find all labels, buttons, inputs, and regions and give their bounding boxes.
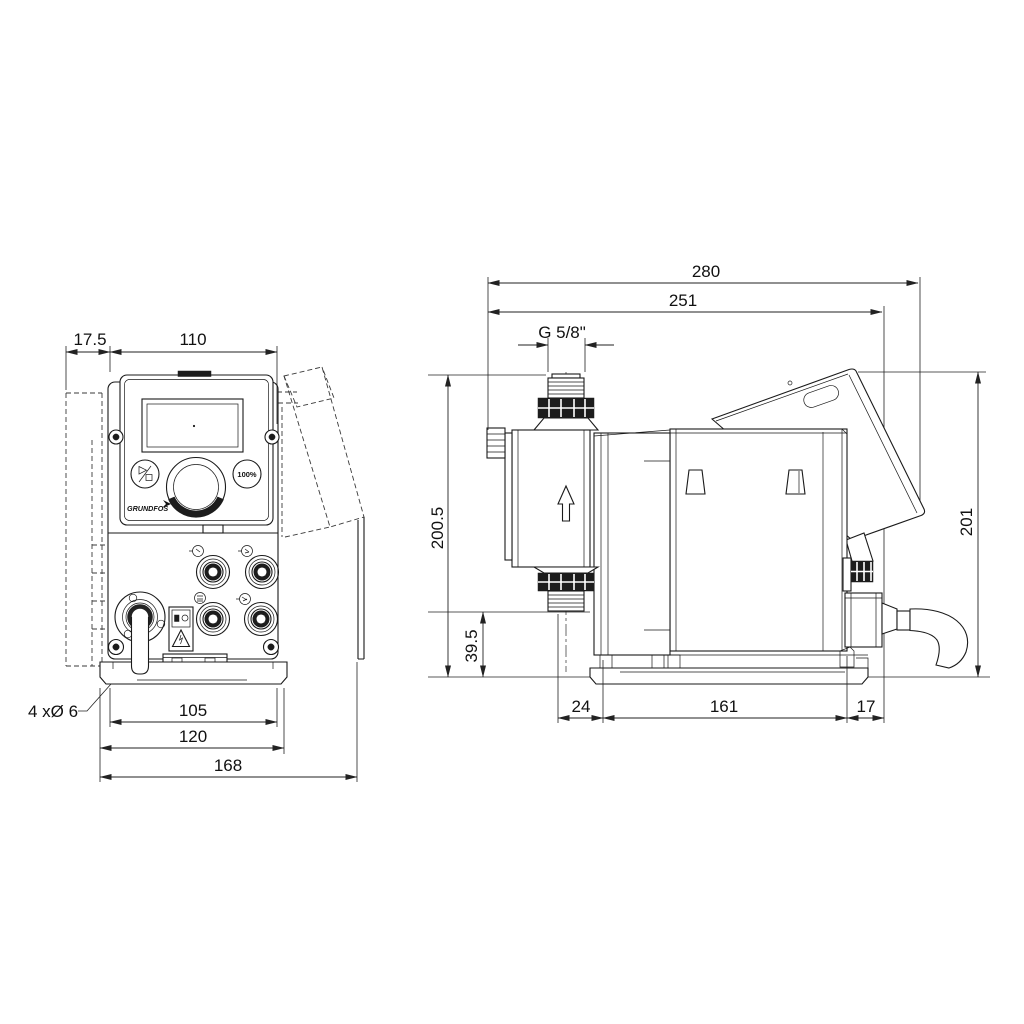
dim-base-rear-offset: 17 bbox=[847, 680, 884, 723]
stub-collar bbox=[843, 558, 851, 591]
svg-text:251: 251 bbox=[669, 291, 697, 310]
svg-text:280: 280 bbox=[692, 262, 720, 281]
dim-depth-to-cable-gland: 251 bbox=[488, 291, 882, 312]
dosing-head bbox=[487, 372, 598, 672]
start-stop-button[interactable] bbox=[131, 460, 159, 488]
gland-nozzle bbox=[897, 611, 910, 630]
dim-base-length: 161 bbox=[603, 656, 847, 723]
brand-name: GRUNDFOS bbox=[127, 504, 168, 513]
svg-text:24: 24 bbox=[572, 697, 591, 716]
svg-text:17.5: 17.5 bbox=[73, 330, 106, 349]
display-cursor-dot bbox=[193, 425, 195, 427]
dim-thread-size: G 5/8" bbox=[518, 323, 614, 372]
discharge-valve bbox=[534, 374, 598, 430]
cable-gland bbox=[845, 593, 882, 647]
front-view: 100% GRUNDFOS bbox=[28, 330, 364, 782]
adapter-section bbox=[594, 430, 670, 655]
suction-valve bbox=[534, 567, 598, 611]
svg-text:201: 201 bbox=[957, 508, 976, 536]
svg-text:105: 105 bbox=[179, 701, 207, 720]
drawing-canvas: 100% GRUNDFOS bbox=[0, 0, 1024, 1024]
deaeration-knob[interactable] bbox=[487, 428, 505, 458]
svg-text:39.5: 39.5 bbox=[462, 629, 481, 662]
corner-screw bbox=[109, 640, 124, 655]
click-wheel[interactable] bbox=[167, 458, 226, 517]
svg-text:200.5: 200.5 bbox=[428, 507, 447, 550]
wall-plate-phantom bbox=[66, 393, 108, 666]
drive-housing bbox=[670, 429, 847, 651]
warning-label bbox=[169, 607, 193, 651]
mounting-plate-front bbox=[100, 662, 287, 684]
rear-connections bbox=[843, 558, 968, 668]
svg-text:120: 120 bbox=[179, 727, 207, 746]
panel-top-tab bbox=[178, 371, 211, 377]
dim-hole-spacing: 105 bbox=[110, 688, 277, 727]
svg-text:G 5/8": G 5/8" bbox=[538, 323, 586, 342]
svg-text:4 xØ 6: 4 xØ 6 bbox=[28, 702, 78, 721]
power-cable bbox=[910, 609, 968, 668]
mounting-holes-callout: 4 xØ 6 bbox=[28, 684, 111, 721]
svg-text:110: 110 bbox=[179, 330, 206, 349]
corner-screw bbox=[264, 640, 279, 655]
control-panel: 100% GRUNDFOS bbox=[109, 371, 279, 525]
tilted-panel-phantom bbox=[277, 367, 364, 659]
mains-cable-front bbox=[132, 617, 149, 674]
hundred-percent-label: 100% bbox=[237, 470, 257, 479]
svg-text:168: 168 bbox=[214, 756, 242, 775]
svg-text:161: 161 bbox=[710, 697, 738, 716]
dimensional-drawing-sheet: 100% GRUNDFOS bbox=[0, 0, 1024, 1024]
hundred-percent-button[interactable]: 100% bbox=[233, 460, 261, 488]
side-view: 280 251 G 5/8" 200.5 39.5 201 bbox=[428, 262, 990, 723]
mounting-plate-side bbox=[590, 668, 868, 684]
dim-wall-offset: 17.5 bbox=[66, 330, 110, 390]
svg-text:17: 17 bbox=[857, 697, 876, 716]
panel-screw-left bbox=[109, 430, 123, 444]
panel-screw-right bbox=[265, 430, 279, 444]
